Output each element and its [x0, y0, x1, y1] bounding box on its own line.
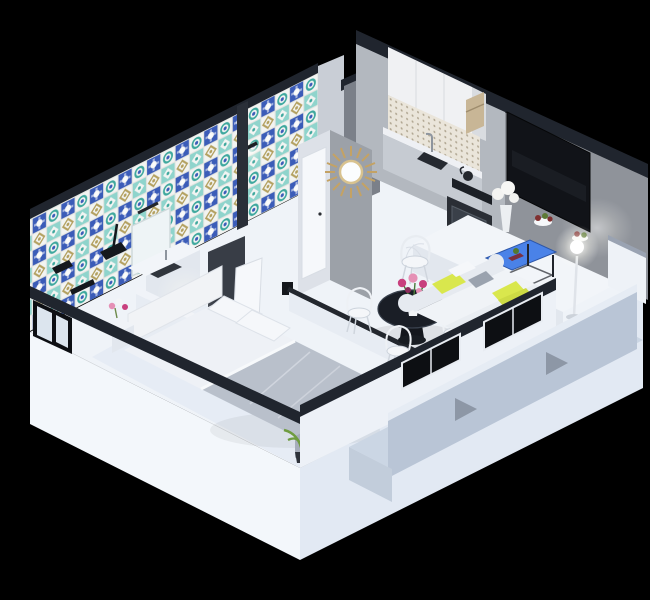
- door-handle: [318, 212, 321, 215]
- white-flowers-2: [501, 181, 515, 195]
- flower-4: [405, 287, 411, 293]
- floor-lamp-head: [570, 240, 584, 254]
- coffee-table-plant: [513, 248, 519, 254]
- sofa-arm-left: [398, 294, 416, 312]
- floorplan-canvas: [0, 0, 650, 600]
- flower-stem-2: [414, 283, 415, 295]
- hall-column: [298, 130, 377, 300]
- floorplan-render: [0, 0, 650, 600]
- hall-door: [302, 147, 326, 279]
- fruit-red-1: [535, 215, 541, 221]
- sofa-arm-right: [488, 254, 504, 270]
- flower-1: [398, 279, 406, 287]
- kettle: [463, 171, 473, 181]
- flower-3: [419, 280, 427, 288]
- nightstand-flower-2: [115, 298, 122, 305]
- bath-partition-edge: [237, 101, 248, 230]
- flower-2: [408, 273, 417, 282]
- nightstand-flower-1: [109, 303, 115, 309]
- fruit-red-2: [547, 216, 552, 221]
- mirror-glass: [340, 161, 362, 183]
- table-base: [398, 335, 426, 345]
- fruit-green-1: [542, 213, 548, 219]
- nightstand-flower-3: [122, 304, 128, 310]
- white-flowers-3: [509, 193, 519, 203]
